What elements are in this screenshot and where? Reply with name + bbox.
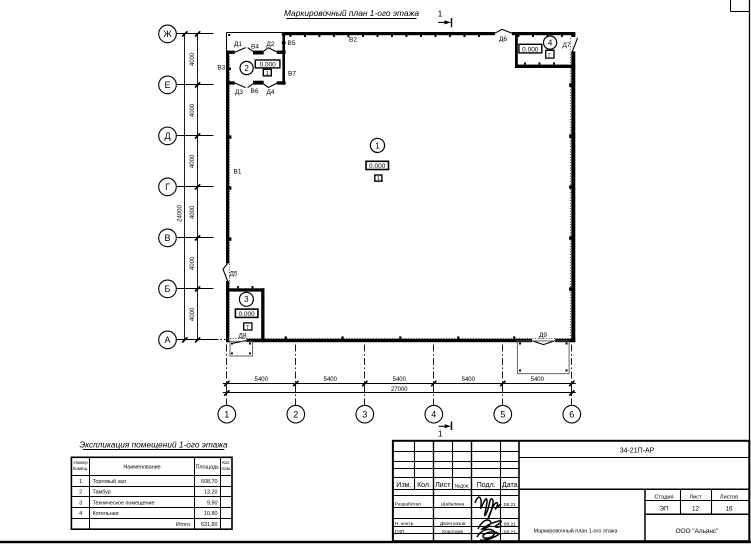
svg-text:Г: Г xyxy=(548,53,551,59)
svg-text:608,70: 608,70 xyxy=(201,479,218,485)
svg-text:Дата: Дата xyxy=(502,482,518,489)
svg-text:Д: Д xyxy=(164,131,170,141)
svg-text:0.000: 0.000 xyxy=(522,46,539,53)
svg-text:1: 1 xyxy=(79,479,82,485)
svg-text:Маркировочный план 1-ого этажа: Маркировочный план 1-ого этажа xyxy=(284,8,419,18)
svg-text:2: 2 xyxy=(79,490,82,496)
svg-text:631,80: 631,80 xyxy=(201,522,218,528)
svg-text:В7: В7 xyxy=(288,71,296,78)
svg-text:Б: Б xyxy=(165,284,171,294)
svg-text:Листов: Листов xyxy=(720,494,738,500)
svg-text:08.21: 08.21 xyxy=(504,522,516,528)
svg-text:Ж: Ж xyxy=(163,29,172,39)
svg-text:12: 12 xyxy=(692,506,700,513)
svg-text:4000: 4000 xyxy=(190,154,196,168)
svg-text:34-21П-АР: 34-21П-АР xyxy=(620,448,655,455)
svg-text:24000: 24000 xyxy=(177,204,183,221)
svg-text:4: 4 xyxy=(431,409,436,419)
svg-text:Площадь: Площадь xyxy=(196,465,220,471)
svg-text:Изм.: Изм. xyxy=(396,482,411,489)
svg-text:Г: Г xyxy=(165,182,170,192)
svg-text:5400: 5400 xyxy=(462,377,476,383)
svg-text:4: 4 xyxy=(79,511,82,517)
svg-text:ГИП: ГИП xyxy=(395,529,405,535)
svg-text:Кол.: Кол. xyxy=(417,482,431,489)
svg-text:1: 1 xyxy=(224,409,229,419)
svg-text:4000: 4000 xyxy=(190,103,196,117)
svg-text:0.000: 0.000 xyxy=(238,311,255,318)
svg-text:Д7: Д7 xyxy=(562,42,570,49)
svg-text:В3: В3 xyxy=(217,64,225,71)
svg-text:В: В xyxy=(164,233,170,243)
svg-text:5: 5 xyxy=(500,409,505,419)
svg-text:В2: В2 xyxy=(349,36,357,43)
svg-text:2: 2 xyxy=(293,409,298,419)
svg-text:В1: В1 xyxy=(234,169,242,176)
svg-text:Д1: Д1 xyxy=(234,41,242,48)
svg-text:1: 1 xyxy=(375,141,380,150)
svg-text:Шабалина: Шабалина xyxy=(441,501,464,507)
svg-text:27000: 27000 xyxy=(391,387,408,393)
svg-text:Торговый зал: Торговый зал xyxy=(93,478,127,485)
svg-text:3: 3 xyxy=(362,409,367,419)
svg-text:4000: 4000 xyxy=(190,307,196,321)
svg-text:Экспликация помещений 1-ого эт: Экспликация помещений 1-ого этажа xyxy=(79,439,228,449)
svg-text:08.21: 08.21 xyxy=(504,530,516,536)
svg-text:Д3: Д3 xyxy=(235,89,243,96)
svg-text:А: А xyxy=(164,335,170,345)
svg-text:10,80: 10,80 xyxy=(204,511,218,517)
svg-text:ЭП: ЭП xyxy=(659,506,669,513)
svg-text:3: 3 xyxy=(244,295,249,304)
svg-text:3: 3 xyxy=(79,500,82,506)
svg-text:Д6: Д6 xyxy=(499,36,507,43)
svg-text:пом.: пом. xyxy=(222,466,231,471)
svg-text:1: 1 xyxy=(377,176,380,182)
svg-text:Е: Е xyxy=(164,80,170,90)
svg-text:Номер: Номер xyxy=(74,460,89,465)
svg-text:Маркировочный план 1-ого этажа: Маркировочный план 1-ого этажа xyxy=(533,528,617,535)
svg-text:Лист: Лист xyxy=(435,482,451,489)
svg-text:В5: В5 xyxy=(288,40,296,47)
svg-text:Тамбур: Тамбур xyxy=(93,490,111,496)
svg-text:Итого.: Итого. xyxy=(176,522,192,528)
svg-text:В4: В4 xyxy=(251,43,259,50)
svg-text:№док.: №док. xyxy=(455,484,470,490)
svg-text:6: 6 xyxy=(569,409,574,419)
svg-text:Д4: Д4 xyxy=(266,89,274,96)
svg-text:4000: 4000 xyxy=(190,52,196,66)
svg-text:4: 4 xyxy=(548,39,553,48)
svg-text:ООО "Альянс": ООО "Альянс" xyxy=(676,528,719,535)
svg-text:Д9: Д9 xyxy=(539,332,547,339)
svg-text:Техническое помещение: Техническое помещение xyxy=(93,500,155,506)
svg-text:0.000: 0.000 xyxy=(259,62,276,69)
svg-text:5400: 5400 xyxy=(531,377,545,383)
svg-text:4000: 4000 xyxy=(190,205,196,219)
svg-text:9,90: 9,90 xyxy=(207,500,218,506)
svg-text:16: 16 xyxy=(725,506,733,513)
svg-text:Коротаев: Коротаев xyxy=(442,529,463,535)
svg-text:Кат.: Кат. xyxy=(222,460,230,465)
svg-text:13,20: 13,20 xyxy=(204,490,218,496)
svg-text:Д5: Д5 xyxy=(229,271,237,278)
svg-text:Н. контр.: Н. контр. xyxy=(395,521,415,527)
svg-text:Лист: Лист xyxy=(689,494,702,500)
svg-text:помещ.: помещ. xyxy=(73,466,89,471)
svg-text:Стадия: Стадия xyxy=(654,494,673,500)
svg-text:Двоеглазов: Двоеглазов xyxy=(440,521,466,527)
svg-text:Подл.: Подл. xyxy=(477,482,496,489)
svg-text:Д8: Д8 xyxy=(238,333,246,340)
svg-text:Разработал: Разработал xyxy=(395,501,421,507)
svg-text:Котельная: Котельная xyxy=(93,511,119,517)
svg-text:5400: 5400 xyxy=(255,377,269,383)
svg-text:В6: В6 xyxy=(251,88,259,95)
svg-text:1: 1 xyxy=(266,71,269,77)
svg-text:0.000: 0.000 xyxy=(369,163,386,170)
svg-text:Наименование: Наименование xyxy=(123,465,160,471)
svg-text:2: 2 xyxy=(244,64,249,73)
svg-text:08.21: 08.21 xyxy=(504,502,516,508)
svg-text:1: 1 xyxy=(438,429,443,439)
svg-text:1: 1 xyxy=(438,9,443,19)
svg-text:5400: 5400 xyxy=(324,377,338,383)
svg-text:5400: 5400 xyxy=(393,377,407,383)
svg-text:Д2: Д2 xyxy=(266,41,274,48)
svg-text:4000: 4000 xyxy=(190,256,196,270)
